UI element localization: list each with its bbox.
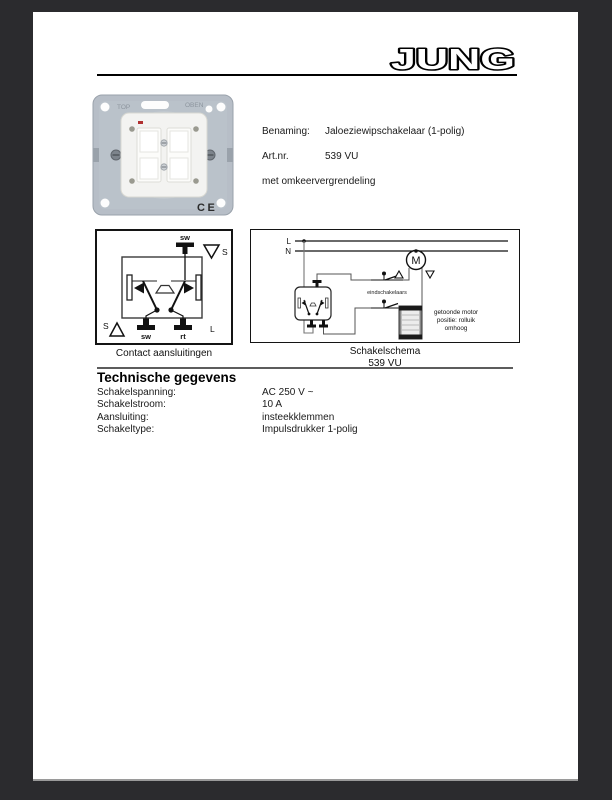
photo-claw-screw [129,178,135,184]
shutter-top-bar [399,306,422,311]
schema-label-l: L [287,237,292,246]
tech-row-label: Aansluiting: [97,412,262,424]
tech-heading: Technische gegevens [97,370,236,385]
photo-claw-screw [129,126,135,132]
contact-bar-left [127,275,132,300]
tech-row-value: AC 250 V ~ [262,387,313,399]
photo-claw-screw [193,178,199,184]
photo-claw-screw [193,126,199,132]
tech-row: Schakeltype: Impulsdrukker 1-polig [97,424,358,436]
photo-notch [93,148,99,162]
motor-letter: M [411,255,420,267]
product-photo: TOP OBEN CE [85,88,241,220]
contact-terminal-br-stem [180,319,186,326]
schema-switch-bar [298,298,301,308]
photo-paddle [140,158,158,179]
tech-row-value: 10 A [262,399,282,411]
schema-note-line1: getoonde motor [434,309,478,316]
ce-mark: CE [197,202,217,214]
schema-junction [414,249,418,253]
info-row-benaming: Benaming: Jaloeziewipschakelaar (1-polig… [262,126,465,151]
shutter-box [399,306,422,339]
schema-pivot [316,313,319,316]
tech-row-label: Schakelspanning: [97,387,262,399]
benaming-label: Benaming: [262,126,325,137]
schema-note-line3: omhoog [445,325,468,332]
photo-red-mark [138,121,143,124]
limit-switch-2-blade [385,304,398,309]
jung-logo-text: JUNG [391,44,515,76]
photo-hole [217,199,226,208]
arrow-right-icon [184,283,194,294]
arrow-left-icon [134,283,144,294]
contact-label-l: L [210,324,215,334]
contact-bar-right [196,275,201,300]
contact-label-s-top: S [222,247,228,257]
schema-note-line2: positie: rolluik [437,317,476,324]
down-direction-icon [426,271,434,278]
tech-row-value: insteekklemmen [262,412,334,424]
photo-hole [206,106,213,113]
limit-switch-2-plunger [382,300,386,304]
photo-paddle [170,158,188,179]
contact-diagram-caption: Contact aansluitingen [95,348,233,359]
product-info: Benaming: Jaloeziewipschakelaar (1-polig… [262,126,465,201]
contact-terminal-bl-stem [143,319,149,326]
shutter-rail [400,311,402,335]
up-direction-icon [395,271,403,278]
info-row-artnr: Art.nr. 539 VU [262,151,465,176]
schema-terminal-top [313,280,322,283]
contact-lever-right [171,281,185,310]
schema-wire-up [317,274,371,280]
schema-switch-bar [326,298,329,308]
tech-row-label: Schakeltype: [97,424,262,436]
contact-diagram: sw S s [95,229,233,345]
photo-hole [217,103,226,112]
photo-hole [101,103,110,112]
tech-row: Schakelstroom: 10 A [97,399,358,411]
limit-switch-1-plunger [382,272,386,276]
photo-stamp-top: TOP [117,104,130,111]
contact-label-sw-bottom: sw [141,332,151,341]
photo-hole [101,199,110,208]
artnr-value: 539 VU [325,151,358,162]
direction-up-icon [110,323,124,336]
shutter-rail [420,311,422,335]
info-note: met omkeervergrendeling [262,176,465,201]
artnr-label: Art.nr. [262,151,325,162]
photo-stamp-oben: OBEN [185,102,204,109]
schema-wire-motor-left [403,268,409,280]
tech-row-label: Schakelstroom: [97,399,262,411]
schema-terminal-br [319,325,328,328]
schema-terminal-top-stem [316,283,319,288]
tech-row: Aansluiting: insteekklemmen [97,412,358,424]
contact-cam [156,286,174,294]
contact-terminal-top-stem [183,247,188,254]
tech-table: Schakelspanning: AC 250 V ~ Schakelstroo… [97,387,358,437]
direction-down-icon [204,245,219,258]
schema-label-n: N [285,247,291,256]
contact-label-s-bottom: S [103,321,109,331]
schema-caption-line1: Schakelschema [250,346,520,358]
shutter-bottom-bar [399,335,422,340]
photo-paddle [140,131,158,152]
jung-logo: JUNG [385,42,521,76]
photo-mechanism [121,113,207,197]
photo-notch [227,148,233,162]
tech-row: Schakelspanning: AC 250 V ~ [97,387,358,399]
schema-wire-motor-right [403,268,422,308]
schema-terminal-bl-stem [310,320,313,325]
contact-label-sw-top: sw [180,233,190,242]
tech-section-rule [97,367,513,369]
contact-label-rt: rt [180,332,186,341]
contact-wire [171,310,183,319]
contact-terminal-br [174,325,192,330]
schema-label-eindschakelaars: eindschakelaars [367,290,407,296]
contact-terminal-bl [137,325,155,330]
schema-terminal-br-stem [322,320,325,325]
contact-wire [146,310,157,319]
schema-diagram: L N [250,229,520,343]
contact-lever-left [143,281,157,310]
datasheet-page: JUNG TOP OBEN [33,12,578,781]
contact-terminal-top [176,243,194,248]
tech-row-value: Impulsdrukker 1-polig [262,424,358,436]
header-rule [97,74,517,76]
benaming-value: Jaloeziewipschakelaar (1-polig) [325,126,465,137]
note-text: met omkeervergrendeling [262,176,375,187]
schema-terminal-bl [307,325,316,328]
schema-pivot [308,313,311,316]
photo-paddle [170,131,188,152]
photo-slot [141,101,169,109]
